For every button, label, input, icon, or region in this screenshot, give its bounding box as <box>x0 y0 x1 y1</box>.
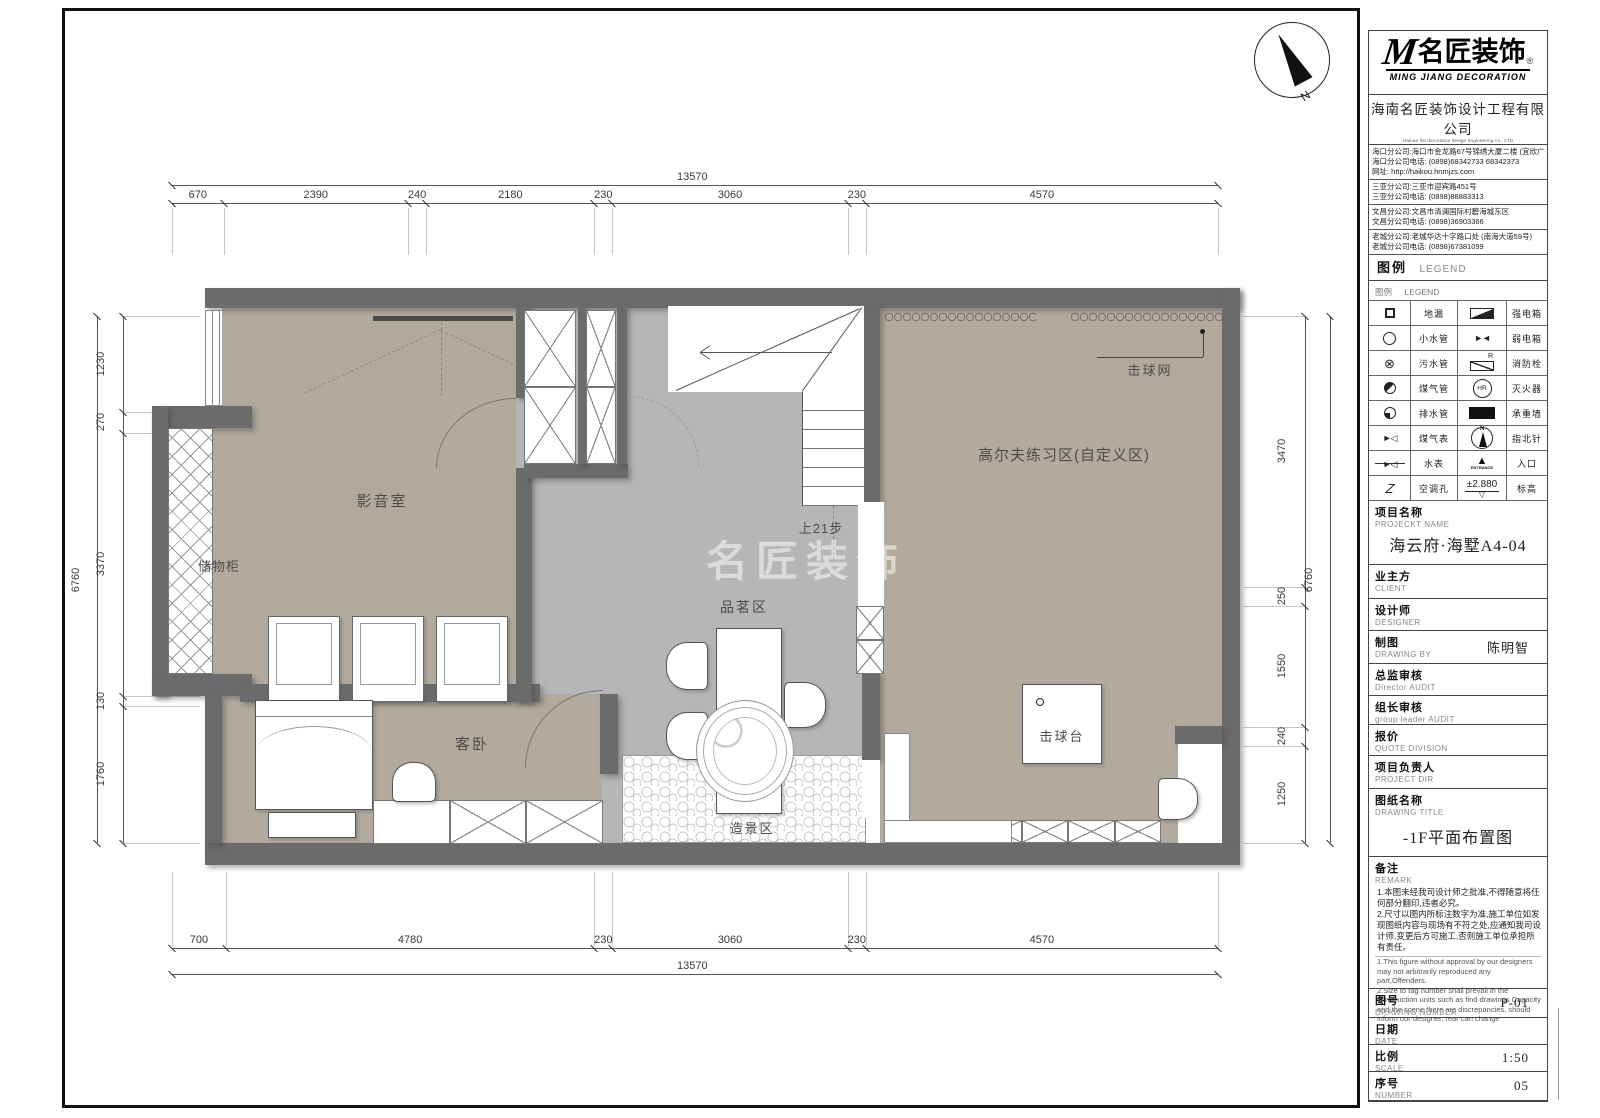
brand-name: 名匠装饰 <box>1418 37 1526 67</box>
cabinet-cell <box>856 640 884 674</box>
dim-label: 4570 <box>1028 189 1056 201</box>
fire-hydrant-icon: R <box>1458 351 1507 376</box>
wall-right <box>1222 288 1240 843</box>
wall-top <box>205 288 1240 308</box>
dim-graphic <box>1218 872 1219 947</box>
closet-cell <box>586 387 616 464</box>
landscape-area-label: 造景区 <box>702 818 802 837</box>
company-name: 海南名匠装饰设计工程有限公司 <box>1369 98 1547 138</box>
legend-label: 排水管 <box>1411 401 1458 426</box>
field-label-cn: 总监审核 <box>1375 667 1541 683</box>
field-label-cn: 项目负责人 <box>1375 759 1541 775</box>
cabinet-cell <box>1115 820 1162 843</box>
dim-graphic <box>848 208 849 255</box>
dim-label: 1230 <box>95 352 107 376</box>
field-drawing-number: 图号DRAWING NUMBERP-01 <box>1369 989 1547 1018</box>
hitting-net-label: 击球网 <box>1100 360 1200 379</box>
cad-sheet: 上21步 <box>0 0 1600 1118</box>
legend-header-en: LEGEND <box>1419 264 1466 275</box>
hitting-tee-platform <box>1022 684 1102 764</box>
wall-av-hall-lower <box>516 468 532 702</box>
legend-label: 弱电箱 <box>1507 326 1547 351</box>
dim-graphic <box>1243 727 1304 728</box>
legend-label: 消防栓 <box>1507 351 1547 376</box>
dim-label: 250 <box>1276 587 1288 605</box>
field-value: -1F平面布置图 <box>1369 824 1547 848</box>
title-block-fields: 项目名称PROJECKT NAME海云府·海墅A4-04业主方CLIENT设计师… <box>1369 501 1547 1101</box>
dim-label: 13570 <box>677 960 708 972</box>
dim-label: 3370 <box>95 552 107 576</box>
window-left <box>205 310 222 406</box>
net-leader-vertical <box>1203 332 1204 357</box>
title-block: M 名匠装饰 ® MING JIANG DECORATION 海南名匠装饰设计工… <box>1368 30 1548 1102</box>
dim-graphic <box>1243 843 1304 844</box>
legend-label: 承重墙 <box>1507 401 1547 426</box>
wardrobe-cell <box>450 800 527 844</box>
legend-subheader-en: LEGEND <box>1404 287 1439 297</box>
legend-label: 指北针 <box>1507 426 1547 451</box>
dim-label: 1250 <box>1276 782 1288 806</box>
north-compass-icon: N <box>1458 426 1507 451</box>
remark-notes-cn: 1.本图未经我司设计师之批准,不得随意将任何部分翻印,违者必究。2.尺寸以图内所… <box>1375 887 1541 953</box>
gas-pipe-icon <box>1369 376 1411 401</box>
sofa-seat <box>268 616 340 702</box>
legend-label: 煤气表 <box>1411 426 1458 451</box>
field-label-en: PROJECT DIR <box>1375 775 1541 784</box>
dim-graphic <box>426 208 427 255</box>
field-label-en: QUOTE DIVISION <box>1375 744 1541 753</box>
closet-2 <box>586 310 616 464</box>
bedroom-chair <box>392 762 436 802</box>
storage-wall-left <box>152 406 168 696</box>
dim-graphic <box>172 872 173 947</box>
field-project-dir: 项目负责人PROJECT DIR <box>1369 756 1547 789</box>
page-edge-mark <box>1558 1008 1559 1100</box>
counter-horizontal <box>884 820 1012 843</box>
stair-edge-line <box>802 392 803 506</box>
plant <box>696 700 794 802</box>
entrance-icon: ▲ENTRANCE <box>1458 451 1507 476</box>
closet-1 <box>524 310 576 464</box>
water-meter-icon: ►◁ <box>1369 451 1411 476</box>
wardrobe-cell <box>373 800 450 844</box>
fire-extinguisher-icon: HR <box>1458 376 1507 401</box>
branch-line: 老城分公司电话: (0898)67381099 <box>1372 242 1544 252</box>
legend-table: 地漏强电箱小水管►◄弱电箱⊗污水管R消防栓煤气管HR灭火器排水管承重墙►◁煤气表… <box>1369 301 1547 501</box>
company-logo: M 名匠装饰 ® MING JIANG DECORATION <box>1369 31 1547 95</box>
legend-header-cn: 图例 <box>1377 260 1407 275</box>
field-group-leader-audit: 组长审核group leader AUDIT <box>1369 696 1547 725</box>
closet-cell <box>524 310 576 387</box>
tea-area-label: 品茗区 <box>708 597 780 617</box>
field-value: 05 <box>1514 1078 1529 1094</box>
dim-graphic <box>1243 316 1304 317</box>
drain-pipe-icon <box>1369 401 1411 426</box>
legend-label: 煤气管 <box>1411 376 1458 401</box>
field-client: 业主方CLIENT <box>1369 565 1547 599</box>
dim-graphic <box>123 316 124 843</box>
branch-line: 文昌分公司:文昌市清澜国际村碧海城东区 <box>1372 207 1544 217</box>
dim-graphic <box>124 706 200 707</box>
field-label-en: REMARK <box>1375 876 1541 885</box>
registered-mark-icon: ® <box>1527 55 1534 67</box>
dim-graphic <box>124 316 200 317</box>
field-value: 1:50 <box>1502 1050 1529 1066</box>
av-room-label: 影音室 <box>322 490 442 511</box>
dim-label: 240 <box>1276 727 1288 745</box>
closet-cell <box>586 310 616 387</box>
wall-closet-mid <box>578 306 586 464</box>
branch-entry: 老城分公司:老城华达十字路口处 (南海大道59号)老城分公司电话: (0898)… <box>1369 230 1547 255</box>
field-date: 日期DATE <box>1369 1018 1547 1045</box>
branch-line: 老城分公司:老城华达十字路口处 (南海大道59号) <box>1372 232 1544 242</box>
net-leader-dot <box>1200 329 1205 334</box>
dim-graphic <box>172 208 173 255</box>
field-scale: 比例SCALE1:50 <box>1369 1045 1547 1072</box>
field-value: 海云府·海墅A4-04 <box>1369 532 1547 556</box>
dim-label: 2180 <box>496 189 524 201</box>
golf-area-label: 高尔夫练习区(自定义区) <box>954 444 1174 465</box>
legend-label: 污水管 <box>1411 351 1458 376</box>
dim-graphic <box>1243 606 1304 607</box>
branch-line: 网址: http://haikou.hnmjzs.com <box>1372 167 1544 177</box>
legend-label: 地漏 <box>1411 301 1458 326</box>
field-label-cn: 组长审核 <box>1375 699 1541 715</box>
golf-chair <box>1158 778 1198 820</box>
dim-label: 6760 <box>70 567 82 591</box>
dim-label: 130 <box>95 692 107 710</box>
legend-label: 强电箱 <box>1507 301 1547 326</box>
wall-inner-right <box>1175 726 1222 744</box>
north-compass: N <box>1254 22 1330 98</box>
compass-needle-icon <box>1269 29 1312 86</box>
field-label-cn: 设计师 <box>1375 602 1541 618</box>
branch-line: 三亚分公司:三亚市迎宾路451号 <box>1372 182 1544 192</box>
wall-hall-golf-upper <box>862 306 880 502</box>
branch-list: 海口分公司:海口市金龙路67号锦绣大厦二楼 (宜欣广场对面)海口分公司电话: (… <box>1369 145 1547 255</box>
storage-cabinet <box>168 428 213 674</box>
dim-graphic <box>612 208 613 255</box>
stair-steps <box>802 392 864 506</box>
field-quote-division: 报价QUOTE DIVISION <box>1369 725 1547 756</box>
tea-chair <box>666 642 708 690</box>
field-label-en: Director AUDIT <box>1375 683 1541 692</box>
dim-graphic <box>1243 587 1304 588</box>
field-label-en: CLIENT <box>1375 584 1541 593</box>
bed-headboard-line <box>256 716 372 717</box>
dim-graphic <box>1243 746 1304 747</box>
projector-center-dash <box>441 322 442 396</box>
storage-label: 储物柜 <box>188 556 250 575</box>
dim-label: 1760 <box>95 762 107 786</box>
legend-subheader-cn: 图例 <box>1375 287 1392 297</box>
stair-direction-line <box>700 352 832 353</box>
dim-label: 240 <box>403 189 431 201</box>
dim-graphic <box>172 974 1218 975</box>
wardrobe-cell <box>526 800 603 844</box>
storage-wall-bottom <box>152 674 252 696</box>
field-label-en: DRAWING TITLE <box>1375 808 1541 817</box>
dim-graphic <box>226 872 227 947</box>
legend-label: 空调孔 <box>1411 476 1458 501</box>
projection-screen <box>373 316 513 321</box>
hitting-tee-label: 击球台 <box>1022 726 1102 745</box>
branch-entry: 三亚分公司:三亚市迎宾路451号三亚分公司电话: (0898)88883313 <box>1369 180 1547 205</box>
field-drawing-title: 图纸名称DRAWING TITLE-1F平面布置图 <box>1369 789 1547 857</box>
field-label-cn: 项目名称 <box>1375 504 1541 520</box>
legend-label: 入口 <box>1507 451 1547 476</box>
weak-power-box-icon: ►◄ <box>1458 326 1507 351</box>
field-number: 序号NUMBER05 <box>1369 1072 1547 1101</box>
field-label-cn: 日期 <box>1375 1021 1541 1037</box>
legend-subheader: 图例 LEGEND <box>1369 281 1547 301</box>
storage-floor <box>213 428 250 674</box>
gas-meter-icon: ►◁ <box>1369 426 1411 451</box>
field-label-cn: 业主方 <box>1375 568 1541 584</box>
dim-label: 4570 <box>1028 934 1056 946</box>
dim-graphic <box>594 208 595 255</box>
load-bearing-wall-icon <box>1458 401 1507 426</box>
field-label-en: group leader AUDIT <box>1375 715 1541 724</box>
hitting-net-strip <box>1070 310 1222 322</box>
dim-label: 13570 <box>677 171 708 183</box>
company-info: 海南名匠装饰设计工程有限公司 Hainan list decoration de… <box>1369 95 1547 145</box>
brand-m-icon: M <box>1381 37 1419 67</box>
field-label-en: PROJECKT NAME <box>1375 520 1541 529</box>
branch-entry: 海口分公司:海口市金龙路67号锦绣大厦二楼 (宜欣广场对面)海口分公司电话: (… <box>1369 145 1547 180</box>
dim-label: 230 <box>843 934 871 946</box>
field-drawing-by: 制图DRAWING BY陈明智 <box>1369 631 1547 664</box>
tee-point <box>1036 698 1044 706</box>
dim-graphic <box>866 208 867 255</box>
branch-line: 海口分公司:海口市金龙路67号锦绣大厦二楼 (宜欣广场对面) <box>1372 147 1544 157</box>
field-label-cn: 备注 <box>1375 860 1541 876</box>
dim-label: 670 <box>184 189 212 201</box>
dim-graphic <box>124 843 200 844</box>
guest-bedroom-label: 客卧 <box>438 733 506 754</box>
legend-label: 小水管 <box>1411 326 1458 351</box>
net-leader-horizontal <box>1097 357 1203 358</box>
field-designer: 设计师DESIGNER <box>1369 599 1547 631</box>
small-water-pipe-icon <box>1369 326 1411 351</box>
floor-drain-icon <box>1369 301 1411 326</box>
dim-label: 230 <box>589 934 617 946</box>
dim-label: 230 <box>843 189 871 201</box>
brand-watermark: 名匠装饰 <box>706 528 906 589</box>
sofa-seat <box>352 616 424 702</box>
field-label-cn: 报价 <box>1375 728 1541 744</box>
dim-label: 3060 <box>716 934 744 946</box>
dim-label: 700 <box>185 934 213 946</box>
dim-graphic <box>172 185 1218 186</box>
elevation-icon: ±2.880▽ <box>1458 476 1507 501</box>
dim-graphic <box>408 208 409 255</box>
tea-chair <box>784 682 826 728</box>
dim-graphic <box>172 948 1218 949</box>
wardrobe <box>373 800 603 844</box>
closet-cell <box>524 387 576 464</box>
dim-label: 4780 <box>396 934 424 946</box>
legend-label: 水表 <box>1411 451 1458 476</box>
wall-cabinet <box>856 606 884 674</box>
cabinet-cell <box>856 606 884 640</box>
bed-bench <box>268 812 356 838</box>
dim-label: 230 <box>589 189 617 201</box>
dim-label: 270 <box>95 413 107 431</box>
dim-graphic <box>172 203 1218 204</box>
wall-closet-right <box>617 306 627 464</box>
legend-label: 灭火器 <box>1507 376 1547 401</box>
legend-header: 图例 LEGEND <box>1369 255 1547 281</box>
field-value: 陈明智 <box>1487 638 1529 657</box>
legend-label: 标高 <box>1507 476 1547 501</box>
dim-label: 2390 <box>302 189 330 201</box>
strong-power-box-icon <box>1458 301 1507 326</box>
wall-hall-golf-lower <box>862 672 880 760</box>
hitting-net-strip <box>884 310 1036 322</box>
dim-graphic <box>224 208 225 255</box>
wall-left-bedroom <box>205 696 222 843</box>
company-name-en: Hainan list decoration design engineerin… <box>1378 138 1538 143</box>
dim-label: 3060 <box>716 189 744 201</box>
wall-bottom <box>205 843 1240 865</box>
cabinet-cell <box>1022 820 1069 843</box>
branch-line: 三亚分公司电话: (0898)88883313 <box>1372 192 1544 202</box>
sofa-seat <box>436 616 508 702</box>
cabinet-cell <box>1068 820 1115 843</box>
dim-label: 3470 <box>1276 439 1288 463</box>
ac-hole-icon: Z <box>1369 476 1411 501</box>
wall-closet-bottom <box>524 464 628 478</box>
field-director-audit: 总监审核Director AUDIT <box>1369 664 1547 696</box>
branch-line: 海口分公司电话: (0898)68342733 68342373 <box>1372 157 1544 167</box>
branch-line: 文昌分公司电话: (0898)36903366 <box>1372 217 1544 227</box>
dim-label: 1550 <box>1276 654 1288 678</box>
sewage-pipe-icon: ⊗ <box>1369 351 1411 376</box>
opening-hall-golf-2 <box>862 760 880 818</box>
field-value: P-01 <box>1500 995 1529 1011</box>
field-remark: 备注REMARK1.本图未经我司设计师之批准,不得随意将任何部分翻印,违者必究。… <box>1369 857 1547 989</box>
dim-graphic <box>1330 316 1331 843</box>
field-label-en: DESIGNER <box>1375 618 1541 627</box>
field-projeckt-name: 项目名称PROJECKT NAME海云府·海墅A4-04 <box>1369 501 1547 565</box>
field-label-cn: 图纸名称 <box>1375 792 1541 808</box>
branch-entry: 文昌分公司:文昌市清澜国际村碧海城东区文昌分公司电话: (0898)369033… <box>1369 205 1547 230</box>
dim-graphic <box>1218 208 1219 255</box>
